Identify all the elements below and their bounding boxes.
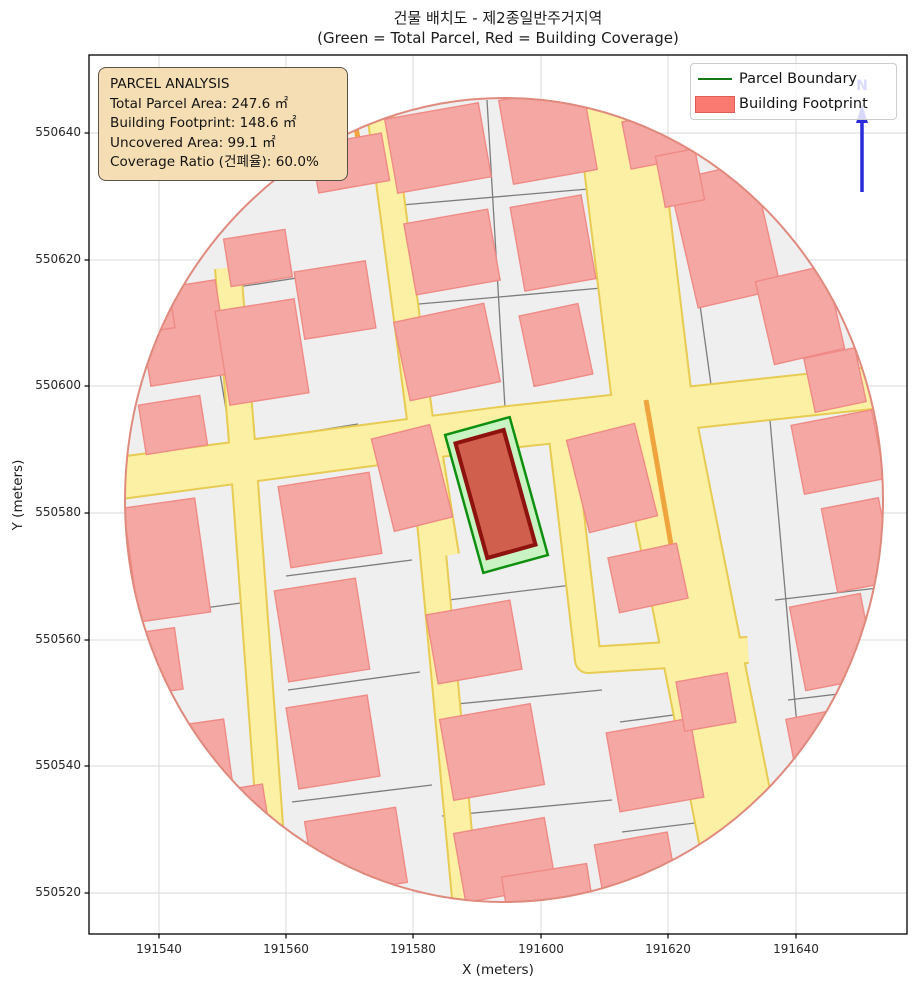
building-footprint: [385, 103, 492, 193]
x-axis-label: X (meters): [89, 962, 907, 978]
building-footprint: [215, 784, 271, 846]
building-footprint: [278, 472, 382, 567]
legend-row-building-footprint: Building Footprint: [691, 92, 896, 116]
buffer-map-area: [120, 82, 895, 935]
building-footprint: [804, 348, 866, 413]
building-footprint: [215, 299, 309, 405]
y-tick-label: 550620: [19, 252, 81, 266]
legend-row-parcel-boundary: Parcel Boundary: [691, 67, 896, 91]
building-footprint: [606, 718, 704, 812]
building-footprint: [136, 280, 230, 386]
figure: 건물 배치도 - 제2종일반주거지역 (Green = Total Parcel…: [0, 0, 914, 990]
parcel-line: [745, 190, 855, 205]
building-footprint: [274, 578, 369, 682]
y-tick-label: 550580: [19, 505, 81, 519]
parcel-analysis-footprint: Building Footprint: 148.6 ㎡: [110, 114, 336, 134]
x-tick-label: 191640: [773, 942, 819, 956]
building-footprint: [123, 498, 210, 622]
building-footprint-patch-swatch: [691, 96, 739, 113]
building-footprint: [440, 704, 545, 801]
building-footprint: [123, 628, 183, 697]
y-tick-label: 550540: [19, 758, 81, 772]
parcel-analysis-uncovered: Uncovered Area: 99.1 ㎡: [110, 134, 336, 154]
y-tick-label: 550520: [19, 885, 81, 899]
parcel-analysis-total-area: Total Parcel Area: 247.6 ㎡: [110, 95, 336, 115]
x-tick-label: 191540: [136, 942, 182, 956]
building-footprint: [510, 195, 596, 291]
y-axis-label: Y (meters): [10, 440, 26, 550]
building-footprint: [129, 286, 175, 334]
building-footprint: [294, 261, 376, 339]
parcel-analysis-title: PARCEL ANALYSIS: [110, 75, 336, 95]
x-tick-label: 191560: [263, 942, 309, 956]
legend-label-building-footprint: Building Footprint: [739, 96, 868, 112]
x-tick-label: 191600: [518, 942, 564, 956]
y-tick-label: 550600: [19, 378, 81, 392]
building-footprint: [224, 229, 293, 286]
building-footprint: [426, 600, 522, 684]
parcel-analysis-coverage: Coverage Ratio (건폐율): 60.0%: [110, 153, 336, 173]
building-footprint: [138, 395, 207, 454]
building-footprint: [286, 695, 380, 789]
y-tick-label: 550640: [19, 125, 81, 139]
x-tick-label: 191620: [645, 942, 691, 956]
building-footprint: [178, 719, 232, 785]
legend: Parcel Boundary Building Footprint: [690, 63, 897, 120]
building-footprint: [791, 410, 885, 494]
building-footprint: [676, 673, 736, 731]
legend-label-parcel-boundary: Parcel Boundary: [739, 71, 857, 87]
building-footprint: [790, 593, 877, 690]
parcel-boundary-line-swatch: [691, 78, 739, 80]
building-footprint: [404, 209, 500, 295]
y-tick-label: 550560: [19, 632, 81, 646]
x-tick-label: 191580: [390, 942, 436, 956]
parcel-analysis-box: PARCEL ANALYSIS Total Parcel Area: 247.6…: [98, 67, 348, 181]
